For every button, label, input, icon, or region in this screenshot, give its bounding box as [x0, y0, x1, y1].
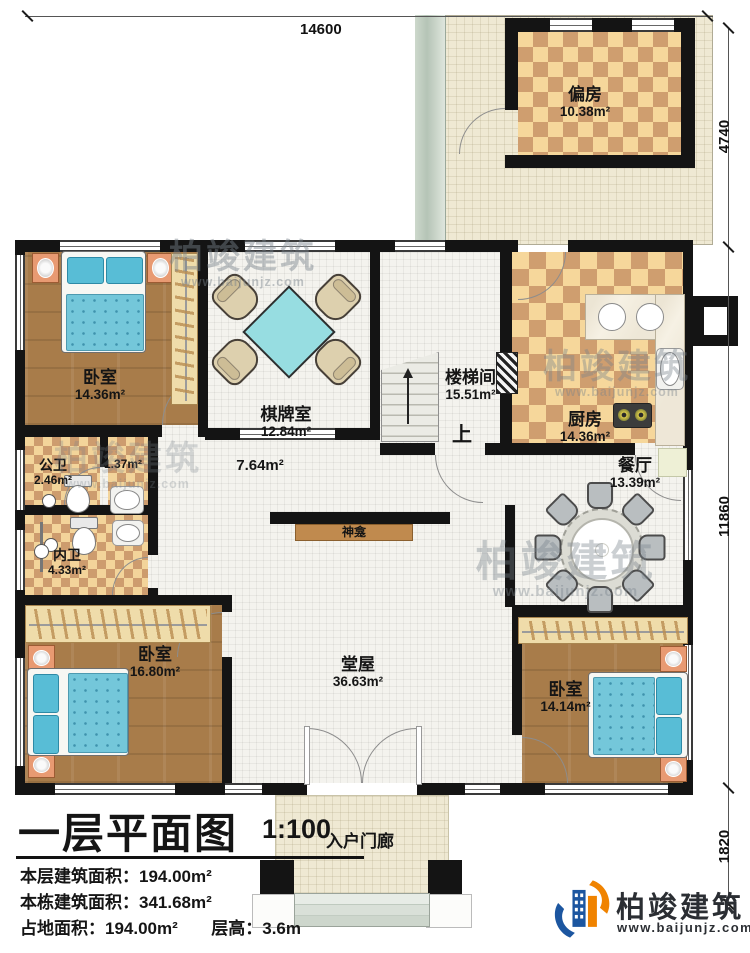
kitchen-flue — [693, 296, 738, 346]
wall-segment — [485, 443, 512, 455]
porch-steps — [294, 893, 430, 927]
room-area: 14.36m² — [55, 387, 145, 402]
room-name: 卧室 — [55, 368, 145, 387]
room-area: 10.38m² — [530, 104, 640, 119]
window — [55, 783, 175, 795]
stat-value: 3.6m — [262, 919, 301, 938]
stat-footprint-area: 占地面积：194.00m² 层高：3.6m — [20, 914, 301, 939]
wall-segment — [505, 18, 518, 110]
room-label-corridor: 7.64m² — [215, 458, 305, 475]
washbasin — [112, 520, 144, 546]
window — [545, 783, 668, 795]
ceiling-lamp — [42, 494, 56, 508]
window — [15, 530, 25, 590]
plan-scale: 1:100 — [262, 814, 331, 845]
wall-segment — [148, 515, 158, 555]
room-name: 内卫 — [32, 548, 102, 564]
wall-segment — [417, 783, 465, 795]
wall-segment — [198, 240, 208, 437]
toilet — [66, 485, 90, 513]
room-name: 棋牌室 — [230, 405, 342, 424]
room-label-tangwu: 堂屋 36.63m² — [308, 655, 408, 689]
dimension-value-right-middle: 11860 — [716, 496, 733, 537]
nightstand — [147, 253, 174, 283]
window — [225, 783, 262, 795]
room-area: 14.36m² — [535, 429, 635, 444]
dimension-value-right-top: 4740 — [716, 120, 733, 153]
room-label-loutijian: 楼梯间 15.51m² — [423, 368, 518, 402]
room-area: 12.84m² — [230, 424, 342, 439]
wall-segment — [370, 240, 380, 440]
wall-segment — [148, 437, 158, 515]
door-leaf — [304, 726, 310, 785]
room-name: 楼梯间 — [423, 368, 518, 387]
plan-title: 一层平面图 — [18, 800, 238, 861]
basin — [598, 303, 626, 331]
porch-column — [260, 860, 294, 894]
washbasin — [110, 486, 144, 514]
pillow — [67, 257, 104, 284]
room-area: 1.37m² — [93, 458, 153, 471]
room-area: 4.33m² — [32, 564, 102, 577]
pillow — [656, 717, 682, 755]
window — [550, 18, 592, 32]
pillow — [33, 715, 59, 754]
wardrobe — [25, 605, 211, 643]
wall-segment — [500, 783, 545, 795]
stat-building-area: 本栋建筑面积：341.68m² — [20, 888, 212, 913]
company-logo-mark — [552, 878, 612, 940]
door-leaf — [416, 726, 422, 785]
wall-segment — [512, 443, 635, 455]
wall-segment — [681, 18, 695, 168]
nightstand — [660, 756, 687, 782]
wardrobe — [171, 253, 198, 405]
title-underline — [16, 856, 364, 859]
wall-segment — [262, 783, 307, 795]
wall-segment — [222, 605, 232, 612]
courtyard-ramp — [415, 15, 446, 243]
room-label-pianfang: 偏房 10.38m² — [530, 85, 640, 119]
wall-segment — [15, 240, 25, 255]
company-url: www.baijunjz.com — [617, 920, 750, 935]
room-label-dining: 餐厅 13.39m² — [580, 456, 690, 490]
stat-label: 占地面积： — [20, 919, 105, 938]
stat-value: 194.00m² — [139, 867, 212, 886]
dimension-line-top — [25, 16, 713, 17]
chair — [639, 535, 666, 561]
stat-label: 本栋建筑面积： — [20, 893, 139, 912]
stat-value: 194.00m² — [105, 919, 178, 938]
chair — [587, 586, 613, 613]
room-name: 公卫 — [22, 458, 84, 474]
nightstand — [660, 646, 687, 672]
pillow — [656, 677, 682, 715]
wall-segment — [335, 240, 395, 252]
dining-table — [570, 518, 634, 582]
room-area: 15.51m² — [423, 387, 518, 402]
wall-segment — [270, 512, 450, 524]
window — [15, 658, 25, 766]
wall-segment — [175, 783, 225, 795]
wall-segment — [148, 595, 232, 605]
window — [395, 240, 445, 252]
dimension-value-top: 14600 — [300, 21, 342, 38]
window — [245, 240, 335, 252]
mattress — [66, 294, 144, 351]
shrine: 神龛 — [295, 524, 413, 541]
pillow — [33, 674, 59, 713]
room-area: 14.14m² — [518, 699, 613, 714]
dimension-value-right-bottom: 1820 — [716, 830, 733, 863]
pillow — [106, 257, 143, 284]
room-name: 餐厅 — [580, 456, 690, 475]
stair-up-label: 上 — [452, 418, 472, 447]
porch-column — [428, 860, 462, 894]
wall-segment — [15, 425, 162, 437]
stat-label: 本层建筑面积： — [20, 867, 139, 886]
room-area: 13.39m² — [580, 475, 690, 490]
stair-direction-arrow — [407, 372, 409, 424]
window — [465, 783, 500, 795]
room-label-washarea: 1.37m² — [93, 458, 153, 471]
room-area: 2.46m² — [22, 474, 84, 487]
room-area: 36.63m² — [308, 674, 408, 689]
wall-segment — [505, 505, 515, 607]
wall-segment — [222, 657, 232, 783]
wall-segment — [592, 18, 632, 32]
window — [632, 18, 674, 32]
floor-plan: 偏房 10.38m² — [0, 0, 750, 953]
room-name: 卧室 — [100, 645, 210, 664]
wall-segment — [500, 240, 512, 443]
room-name: 厨房 — [535, 410, 635, 429]
room-name: 偏房 — [530, 85, 640, 104]
window — [15, 255, 25, 350]
wall-segment — [568, 240, 693, 252]
room-label-gongwei: 公卫 2.46m² — [22, 458, 84, 487]
wall-segment — [15, 783, 55, 795]
porch-side — [426, 894, 472, 928]
wall-segment — [15, 595, 158, 605]
stat-label: 层高： — [211, 919, 262, 938]
room-name: 卧室 — [518, 680, 613, 699]
nightstand — [32, 253, 59, 283]
room-area: 16.80m² — [100, 664, 210, 679]
wall-segment — [668, 783, 693, 795]
mattress — [68, 673, 128, 753]
room-label-bedroom1: 卧室 14.36m² — [55, 368, 145, 402]
chair — [535, 535, 562, 561]
wall-segment — [15, 510, 25, 530]
room-area: 7.64m² — [215, 458, 305, 475]
shrine-label: 神龛 — [342, 525, 366, 539]
basin — [636, 303, 664, 331]
room-label-qipaishi: 棋牌室 12.84m² — [230, 405, 342, 439]
wall-segment — [380, 443, 435, 455]
bed — [27, 668, 129, 756]
stat-floor-area: 本层建筑面积：194.00m² — [20, 862, 212, 887]
bed — [61, 251, 146, 353]
dimension-line-right — [728, 28, 729, 906]
room-label-neiwei: 内卫 4.33m² — [32, 548, 102, 577]
stat-value: 341.68m² — [139, 893, 212, 912]
room-label-bedroom3: 卧室 14.14m² — [518, 680, 613, 714]
room-label-kitchen: 厨房 14.36m² — [535, 410, 635, 444]
wardrobe — [518, 617, 688, 644]
room-name: 堂屋 — [308, 655, 408, 674]
room-label-bedroom2: 卧室 16.80m² — [100, 645, 210, 679]
kitchen-sink — [656, 348, 684, 390]
wall-segment — [505, 155, 695, 168]
